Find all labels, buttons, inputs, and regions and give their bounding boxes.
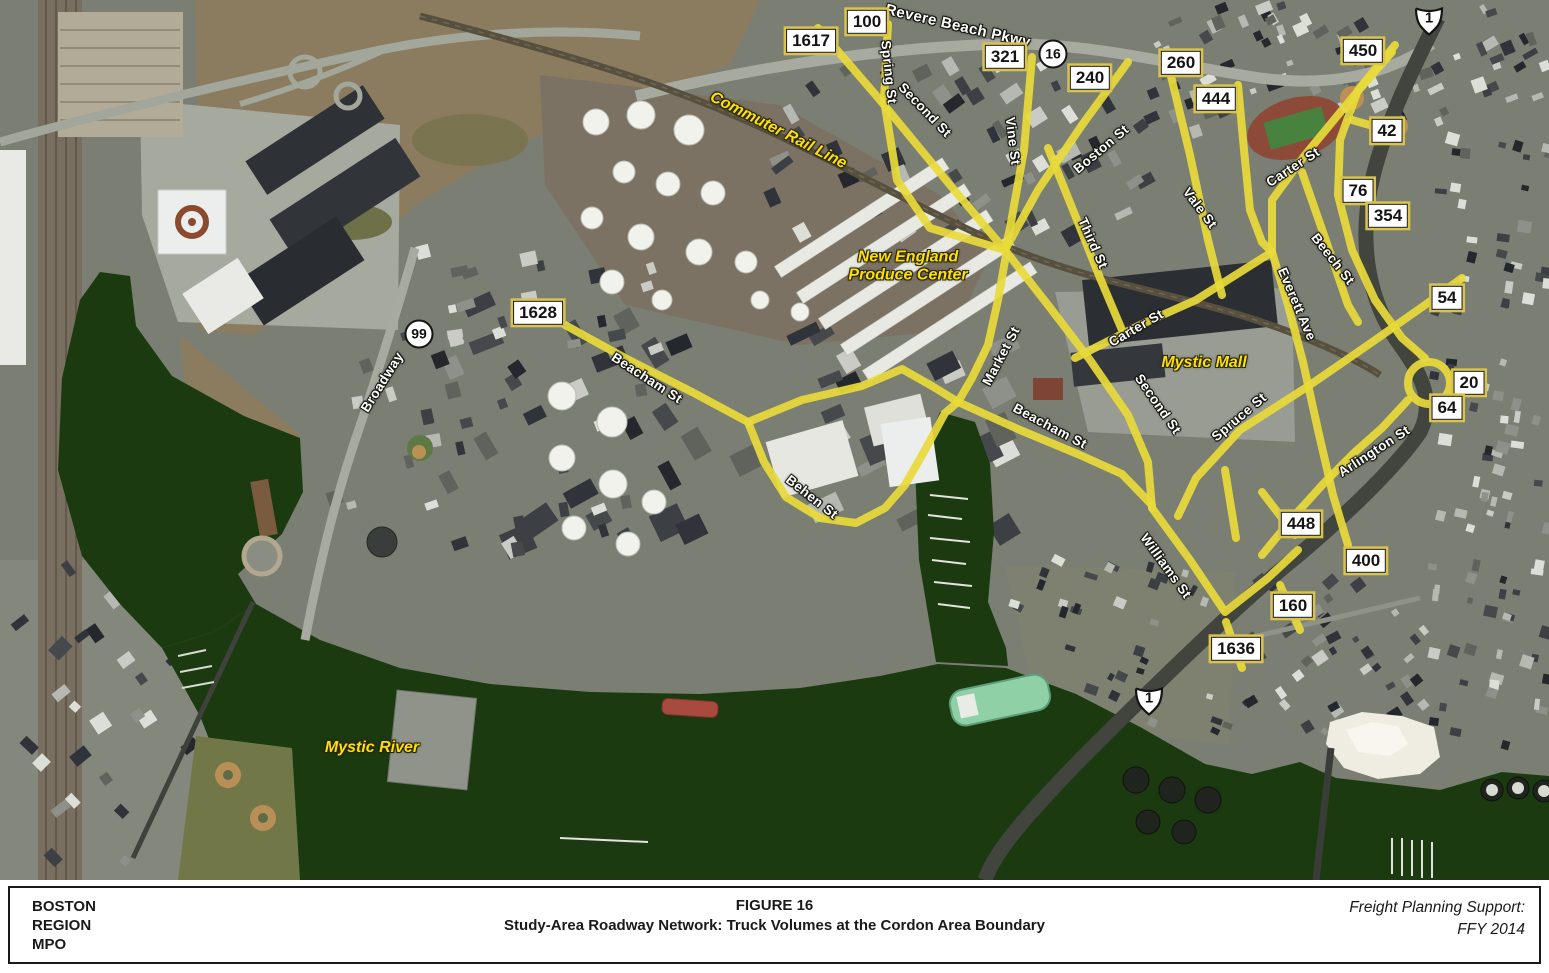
figure-footer: BOSTON REGION MPO FIGURE 16 Study-Area R… bbox=[0, 880, 1549, 973]
street-label-second-st: Second St bbox=[895, 80, 954, 141]
truck-volume-label-448: 448 bbox=[1281, 512, 1321, 536]
route-shield-us-1: 1 bbox=[1412, 6, 1446, 37]
street-label-beech-st: Beech St bbox=[1308, 230, 1357, 287]
truck-volume-label-1617: 1617 bbox=[786, 29, 836, 53]
figure-caption: FIGURE 16 Study-Area Roadway Network: Tr… bbox=[0, 897, 1549, 934]
street-label-vine-st: Vine St bbox=[1003, 116, 1024, 166]
map-figure: Revere Beach PkwySpring StSecond StVine … bbox=[0, 0, 1549, 880]
truck-volume-label-76: 76 bbox=[1343, 179, 1374, 203]
truck-volume-label-240: 240 bbox=[1070, 66, 1110, 90]
truck-volume-label-100: 100 bbox=[847, 10, 887, 34]
map-labels: Revere Beach PkwySpring StSecond StVine … bbox=[0, 0, 1549, 880]
street-label-boston-st: Boston St bbox=[1070, 122, 1131, 177]
route-shield-circle-99: 99 bbox=[405, 320, 434, 349]
street-label-beacham-st: Beacham St bbox=[1011, 400, 1090, 451]
truck-volume-label-20: 20 bbox=[1454, 371, 1485, 395]
truck-volume-label-1636: 1636 bbox=[1211, 637, 1261, 661]
street-label-revere-beach-pkwy: Revere Beach Pkwy bbox=[884, 1, 1033, 51]
street-label-vale-st: Vale St bbox=[1180, 185, 1220, 232]
street-label-arlington-st: Arlington St bbox=[1336, 422, 1413, 479]
us-route-number: 1 bbox=[1132, 690, 1166, 707]
truck-volume-label-42: 42 bbox=[1372, 119, 1403, 143]
place-label-commuter-rail-line: Commuter Rail Line bbox=[706, 88, 849, 173]
street-label-everett-ave: Everett Ave bbox=[1275, 265, 1319, 342]
figure-title: Study-Area Roadway Network: Truck Volume… bbox=[0, 917, 1549, 934]
truck-volume-label-444: 444 bbox=[1196, 87, 1236, 111]
support-line: Freight Planning Support: bbox=[1349, 897, 1525, 919]
street-label-second-st: Second St bbox=[1132, 371, 1184, 437]
us-route-number: 1 bbox=[1412, 10, 1446, 27]
truck-volume-label-354: 354 bbox=[1368, 204, 1408, 228]
truck-volume-label-321: 321 bbox=[985, 45, 1025, 69]
support-line: FFY 2014 bbox=[1349, 919, 1525, 941]
route-shield-us-1: 1 bbox=[1132, 686, 1166, 717]
truck-volume-label-54: 54 bbox=[1432, 286, 1463, 310]
figure-number: FIGURE 16 bbox=[0, 897, 1549, 914]
street-label-spruce-st: Spruce St bbox=[1209, 390, 1270, 444]
truck-volume-label-160: 160 bbox=[1273, 594, 1313, 618]
truck-volume-label-400: 400 bbox=[1346, 549, 1386, 573]
street-label-williams-st: Williams St bbox=[1138, 531, 1195, 602]
route-shield-circle-16: 16 bbox=[1039, 40, 1068, 69]
street-label-broadway: Broadway bbox=[358, 349, 407, 414]
place-label-mystic-mall: Mystic Mall bbox=[1161, 354, 1246, 372]
truck-volume-label-450: 450 bbox=[1343, 39, 1383, 63]
street-label-carter-st: Carter St bbox=[1263, 144, 1322, 190]
org-line: MPO bbox=[32, 935, 96, 954]
street-label-carter-st: Carter St bbox=[1106, 306, 1166, 349]
truck-volume-label-64: 64 bbox=[1432, 396, 1463, 420]
street-label-beacham-st: Beacham St bbox=[609, 350, 685, 407]
truck-volume-label-1628: 1628 bbox=[513, 301, 563, 325]
support-note: Freight Planning Support: FFY 2014 bbox=[1349, 897, 1525, 942]
street-label-behen-st: Behen St bbox=[783, 472, 841, 522]
street-label-market-st: Market St bbox=[979, 324, 1022, 388]
place-label-mystic-river: Mystic River bbox=[325, 739, 419, 757]
truck-volume-label-260: 260 bbox=[1161, 51, 1201, 75]
street-label-spring-st: Spring St bbox=[878, 40, 900, 105]
figure-page: Revere Beach PkwySpring StSecond StVine … bbox=[0, 0, 1549, 973]
place-label-new-england: New England Produce Center bbox=[848, 249, 967, 286]
street-label-third-st: Third St bbox=[1075, 215, 1111, 271]
